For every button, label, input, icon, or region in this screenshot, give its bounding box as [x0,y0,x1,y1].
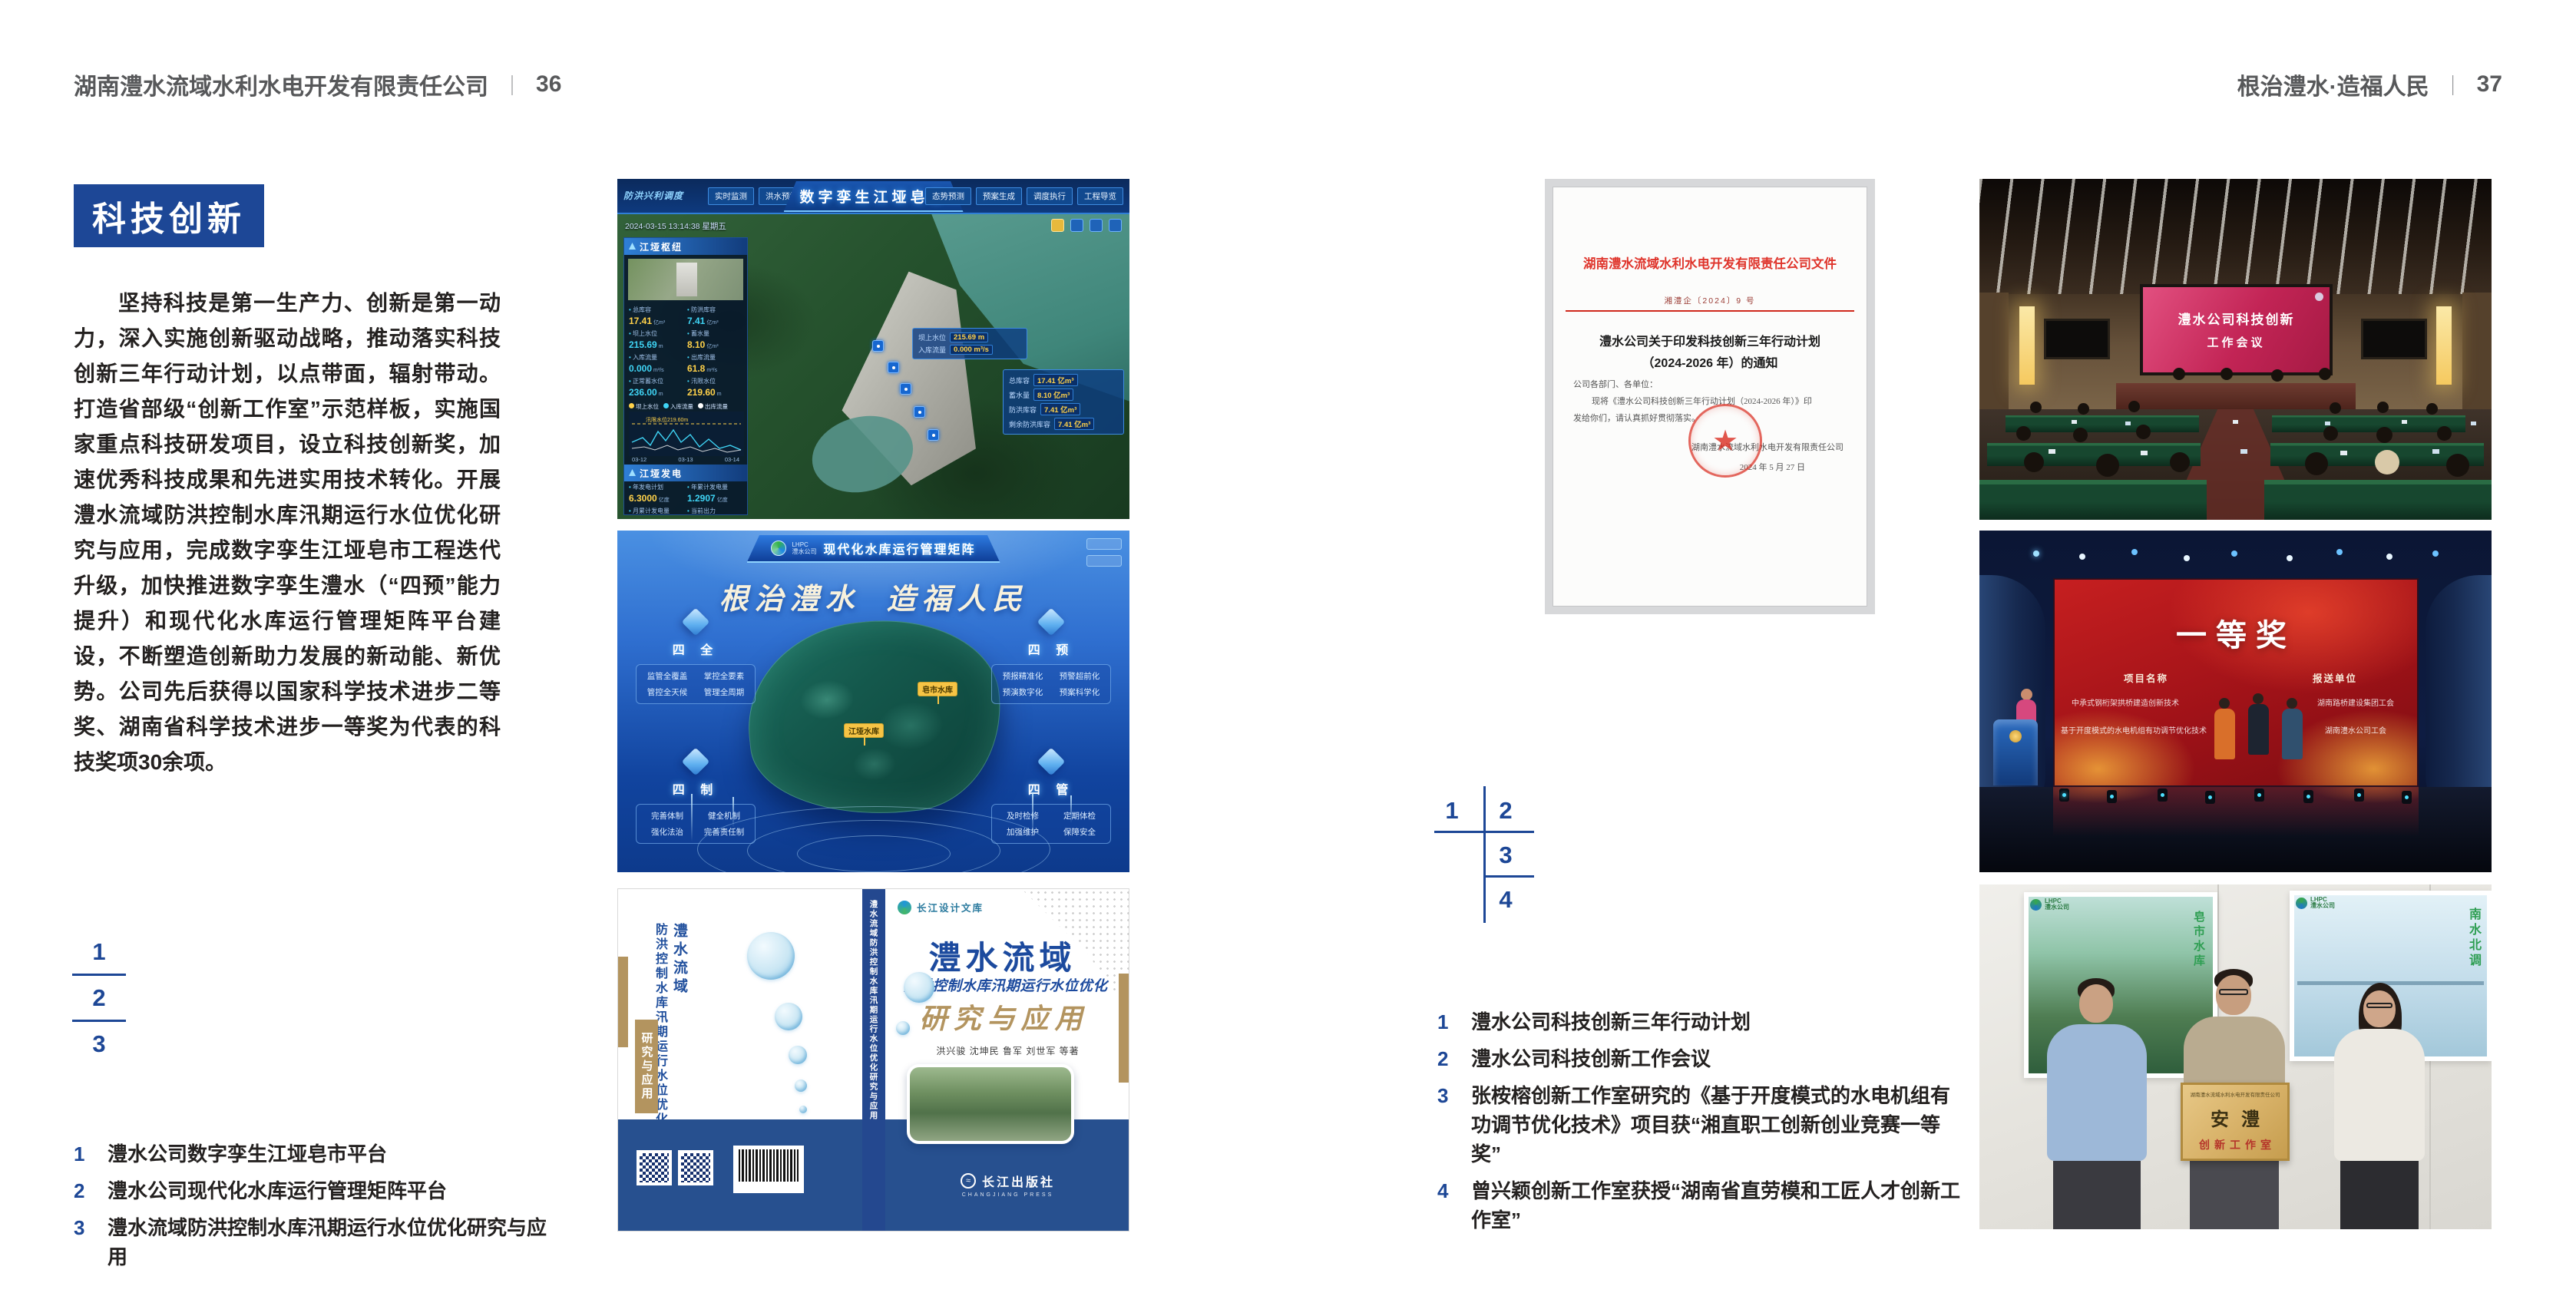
stat-cell: 蓄水量8.10亿m³ [687,329,742,352]
map-marker-icon[interactable] [900,383,911,395]
bubble-label: 蓄水量 [1009,390,1030,400]
wall-tv [2044,319,2110,359]
x-tick: 03-13 [678,456,693,463]
figure-key-2: 2 [1479,797,1533,825]
plaque-header: 湖南澧水流域水利水电开发有限责任公司 [2183,1090,2287,1098]
stat-cell: 当前出力0.00MW [687,507,742,515]
caption-text: 澧水公司数字孪生江垭皂市平台 [107,1139,387,1169]
caption-number: 2 [74,1176,92,1205]
figure-matrix-platform: LHPC 澧水公司 现代化水库运行管理矩阵 根治澧水造福人民 江垭水库 皂市水库… [617,531,1129,872]
toolbar-icons [1051,219,1122,232]
caption: 4 曾兴颖创新工作室获授“湖南省直劳模和工匠人才创新工作室” [1437,1176,1969,1235]
legend-item: 坝上水位 [629,402,659,411]
stat-cell: 年发电计划6.3000亿度 [629,483,684,505]
top-right-button[interactable] [1086,538,1122,550]
legend-item: 入库流量 [663,402,693,411]
stat-label: 蓄水量 [687,329,742,338]
innovation-studio-plaque: 湖南澧水流域水利水电开发有限责任公司 安澧 创新工作室 [2181,1083,2290,1161]
map-marker-icon[interactable] [888,362,899,373]
figure-key-divider [72,974,126,976]
caption: 2 澧水公司现代化水库运行管理矩阵平台 [74,1176,550,1205]
panel-item: 预警超前化 [1052,670,1107,682]
logo-text: 澧水公司 [792,548,816,555]
person2-pants [2190,1159,2279,1229]
caption: 1 澧水公司科技创新三年行动计划 [1437,1007,1969,1037]
map-marker-icon[interactable] [928,429,939,441]
figure-meeting-photo: 澧水公司科技创新 工作会议 [1979,179,2492,520]
attendee-table [1979,480,2207,520]
bubble-row: 剩余防洪库容7.41 亿m³ [1009,418,1118,430]
stat-unit: 亿m³ [653,320,665,326]
tan-accent-bar [618,957,628,1047]
matrix-title: 现代化水库运行管理矩阵 [823,539,975,557]
monitor-icon [682,608,710,636]
lhpc-logo: LHPC澧水公司 [2296,897,2335,909]
spine-title: 澧水流域防洪控制水库汛期运行水位优化研究与应用 [868,900,880,1121]
map-marker-icon[interactable] [872,340,884,352]
tan-accent-bar [1119,974,1129,1083]
forecast-icon [1037,608,1066,636]
attendee-table [2006,415,2199,432]
bubble-label: 入库流量 [918,345,946,355]
light-pillar [691,794,693,841]
caption: 3 张桉榕创新工作室研究的《基于开度模式的水电机组有功调节优化技术》项目获“湘直… [1437,1081,1969,1169]
caption-number: 3 [74,1213,92,1271]
person3-glasses-icon [2366,1003,2392,1008]
publisher-block: ≈ 长江出版社 CHANGJIANG PRESS [885,1172,1129,1198]
column-unit: 报送单位 [2313,670,2357,685]
recipient-head [2253,693,2264,704]
panel-item: 预案科学化 [1052,686,1107,698]
plaque-subtitle: 创新工作室 [2183,1137,2287,1152]
dam-thumbnail-photo [628,259,743,300]
user-icon[interactable] [1051,219,1064,232]
stat-label: 出库流量 [687,353,742,362]
slogan-part: 根治澧水 [719,584,860,616]
figure-digital-twin-dashboard: 防洪兴利调度 实时监测 洪水预报 防洪预警 数字孪生江垭皂市 态势预测 预案生成… [617,179,1129,519]
caption-number: 4 [1437,1176,1456,1235]
power-panel-header: 江垭发电 [624,465,747,481]
host-silhouette [2021,689,2032,700]
head-table [2116,383,2356,409]
salutation: 公司各部门、各单位： [1573,376,1847,393]
stat-cell: 月累计发电量3359.21万度 [629,507,684,515]
body-paragraph: 坚持科技是第一生产力、创新是第一动力，深入实施创新驱动战略，推动落实科技创新三年… [74,286,501,780]
right-running-head: 根治澧水·造福人民 ｜ 37 [2237,68,2502,101]
water-droplet [799,1106,807,1113]
water-droplet [795,1080,807,1092]
panel-title: 四 管 [1028,779,1074,798]
figure-key-divider [72,1020,126,1022]
book-front-cover: 长江设计文库 澧水流域 防洪控制水库汛期运行水位优化 研究与应用 洪兴骏 沈坤民… [885,889,1129,1232]
publisher-logo-icon: ≈ [961,1173,976,1189]
dashboard-header-bar: 防洪兴利调度 实时监测 洪水预报 防洪预警 数字孪生江垭皂市 态势预测 预案生成… [617,179,1129,214]
head-row-3 [2024,452,2044,472]
caption-text: 澧水公司科技创新工作会议 [1471,1044,1711,1073]
side-wall [1979,293,2009,411]
bubble-value: 7.41 亿m³ [1054,418,1094,430]
lectern-emblem [2009,730,2022,742]
page-number-left: 36 [536,71,561,98]
dam-face [974,1077,1008,1141]
left-data-panel: 江垭枢纽 总库容17.41亿m³ 防洪库容7.41亿m³ 坝上水位215.69m… [623,237,748,515]
ceiling [1979,179,2492,294]
tab-plan-generation[interactable]: 预案生成 [976,187,1022,205]
panel-item: 管控全天候 [640,686,695,698]
panel-item: 掌控全要素 [696,670,752,682]
lhpc-logo-text: LHPC澧水公司 [2045,898,2069,911]
person1-shirt [2047,1024,2147,1161]
caption-number: 2 [1437,1044,1456,1073]
stat-label: 防洪库容 [687,306,742,314]
series-name: 长江设计文库 [917,900,984,914]
chart-wrap: 汛限水位219.60m [624,412,747,456]
tab-project-tour[interactable]: 工程导览 [1077,187,1123,205]
screen-title-line1: 澧水公司科技创新 [2143,309,2330,328]
figure-key-4: 4 [1479,886,1533,914]
panel-item: 预报精准化 [995,670,1050,682]
document-page: 湖南澧水流域水利水电开发有限责任公司文件 湘澧企〔2024〕9 号 澧水公司关于… [1553,187,1867,607]
lhpc-logo-icon [2296,898,2307,909]
recipient-suit [2248,704,2269,755]
panel-items: 预报精准化 预警超前化 预演数字化 预案科学化 [991,664,1111,704]
award-row-project: 基于开度模式的水电机组有功调节优化技术 [2061,724,2207,736]
water-droplet [896,1021,910,1035]
column-project: 项目名称 [2124,670,2168,685]
bubble-label: 剩余防洪库容 [1009,419,1050,429]
stat-cell: 入库流量0.000m³/s [629,353,684,375]
header-separator: ｜ [502,71,522,99]
document-number: 湘澧企〔2024〕9 号 [1553,295,1867,306]
stat-value: 0.000 [629,363,652,374]
stat-label: 月累计发电量 [629,507,684,515]
caption-text: 澧水流域防洪控制水库汛期运行水位优化研究与应用 [107,1213,550,1271]
screen-logo-icon [2315,293,2323,301]
lhpc-logo-icon [2030,899,2042,911]
ceiling-light-strips [1979,179,2492,294]
figure-key-divider [1434,831,1534,833]
light-pillar [1070,795,1072,823]
recipient-blue [2282,709,2303,759]
stat-cell: 防洪库容7.41亿m³ [687,306,742,328]
stat-value: 219.60 [687,387,716,398]
stat-cell: 正常蓄水位236.00m [629,377,684,399]
attendee-table [2272,415,2465,432]
panel-items: 监管全覆盖 掌控全要素 管控全天候 管理全周期 [636,664,756,704]
table-items [2049,449,2055,454]
panel-title: 四 预 [1028,640,1074,658]
recipient-orange [2214,709,2235,759]
book-spine: 澧水流域防洪控制水库汛期运行水位优化研究与应用 [862,889,885,1232]
attendee-table [2270,443,2484,466]
timestamp: 2024-03-15 13:14:38 星期五 [625,220,726,232]
back-tag: 研究与应用 [635,1020,658,1113]
figure-official-document: 湖南澧水流域水利水电开发有限责任公司文件 湘澧企〔2024〕9 号 澧水公司关于… [1545,179,1875,614]
capacity-bubble: 总库容17.41 亿m³ 蓄水量8.10 亿m³ 防洪库容7.41 亿m³ 剩余… [1003,369,1124,435]
panel-item: 强化法治 [640,826,695,838]
stat-label: 汛限水位 [687,377,742,385]
caption-text: 澧水公司现代化水库运行管理矩阵平台 [107,1176,447,1205]
water-droplet [775,1003,802,1030]
caption-text: 澧水公司科技创新三年行动计划 [1471,1007,1751,1037]
panel-item: 监管全覆盖 [640,670,695,682]
section-title-box: 科技创新 [74,184,264,247]
bubble-row: 防洪库容7.41 亿m³ [1009,403,1118,415]
title-line1: 澧水公司关于印发科技创新三年行动计划 [1599,336,1820,349]
caption-number: 1 [74,1139,92,1169]
corner-tab: 防洪兴利调度 [623,189,683,202]
award-title: 一等奖 [2055,610,2417,655]
stat-unit: 亿度 [659,498,670,503]
legend-item: 出库流量 [698,402,728,411]
stat-cell: 出库流量61.8m³/s [687,353,742,375]
publisher-name: 长江出版社 [982,1172,1055,1190]
bubble-row: 蓄水量8.10 亿m³ [1009,388,1118,401]
stat-unit: m³/s [706,368,717,373]
panel-siquan: 四 全 监管全覆盖 掌控全要素 管控全天候 管理全周期 [636,612,756,704]
screen-title-line2: 工作会议 [2143,334,2330,350]
wall-lamp [2436,306,2452,385]
caption: 1 澧水公司数字孪生江垭皂市平台 [74,1139,550,1169]
bubble-value: 0.000 m³/s [950,345,993,355]
stat-value: 215.69 [629,339,657,350]
series-logo-row: 长江设计文库 [898,900,984,914]
person1-head [2079,984,2113,1023]
meeting-screen: 澧水公司科技创新 工作会议 [2140,284,2333,375]
figure-award-stage-photo: 一等奖 项目名称 报送单位 中承式钢桁架拱桥建造创新技术 湖南路桥建设集团工会 … [1979,531,2492,872]
book-authors: 洪兴骏 沈坤民 鲁军 刘世军 等著 [885,1044,1129,1057]
qr-code [678,1150,713,1185]
locate-icon[interactable] [1090,219,1103,232]
stat-unit: m³/s [653,368,664,373]
lhpc-logo-text: LHPC澧水公司 [2310,897,2335,909]
panel-siyu: 四 预 预报精准化 预警超前化 预演数字化 预案科学化 [991,612,1111,704]
figure-key-2: 2 [72,984,126,1012]
figure-key-3: 3 [1479,841,1533,869]
person3-pants [2340,1161,2419,1229]
stat-label: 当前出力 [687,507,742,515]
figure-key-1: 1 [1425,797,1479,825]
stat-label: 坝上水位 [629,329,684,338]
maintenance-icon [1037,748,1066,776]
hub-panel-title: 江垭枢纽 [640,240,683,253]
head-row-1 [2030,402,2042,413]
bubble-row: 入库流量0.000 m³/s [918,345,1021,355]
caption-text: 曾兴颖创新工作室获授“湖南省直劳模和工匠人才创新工作室” [1471,1176,1969,1235]
bubble-value: 7.41 亿m³ [1040,403,1080,415]
right-captions: 1 澧水公司科技创新三年行动计划 2 澧水公司科技创新工作会议 3 张桉榕创新工… [1437,1007,1969,1242]
award-row-project: 中承式钢桁架拱桥建造创新技术 [2072,696,2179,708]
attendee-table [1987,443,2201,466]
stat-unit: m [659,392,663,397]
map-label-zaoshi[interactable]: 皂市水库 [918,683,957,696]
bubble-label: 坝上水位 [918,332,946,342]
bridge-deck [2297,981,2484,985]
power-panel-title: 江垭发电 [640,467,683,480]
map-label-jiangya[interactable]: 江垭水库 [845,724,883,737]
header-separator: ｜ [2443,71,2463,99]
wall-tv [2361,319,2427,359]
dam-valley-photo [907,1064,1074,1144]
side-wall [2462,293,2492,411]
caption: 3 澧水流域防洪控制水库汛期运行水位优化研究与应用 [74,1213,550,1271]
building-icon [682,748,710,776]
section-title: 科技创新 [92,200,246,238]
logo-mark: LHPC [792,541,808,548]
series-logo-icon [898,901,911,914]
panel-title: 四 全 [673,640,719,658]
stat-unit: m [717,392,722,397]
stat-unit: m [659,344,663,349]
alert-icon[interactable] [1109,219,1122,232]
head-row-speakers [2173,368,2185,380]
bubble-row: 坝上水位215.69 m [918,332,1021,342]
led-screen: 一等奖 项目名称 报送单位 中承式钢桁架拱桥建造创新技术 湖南路桥建设集团工会 … [2053,578,2419,787]
bubble-value: 215.69 m [950,332,988,342]
water-droplet [904,972,934,1003]
top-right-button[interactable] [1086,555,1122,567]
hub-panel-header: 江垭枢纽 [624,238,747,255]
attendee-table [2264,480,2492,520]
slogan: 根治澧水·造福人民 [2237,68,2429,101]
stat-label: 总库容 [629,306,684,314]
stat-cell: 汛限水位219.60m [687,377,742,399]
caption-text: 张桉榕创新工作室研究的《基于开度模式的水电机组有功调节优化技术》项目获“湘直职工… [1471,1081,1969,1169]
stage-truss-lights [2033,551,2039,557]
panel-item: 管理全周期 [696,686,752,698]
stat-unit: 亿m³ [706,344,718,349]
x-tick: 03-14 [725,456,739,463]
book-back-cover: 澧水流域 防洪控制水库汛期运行水位优化 研究与应用 [618,889,862,1232]
publisher-name-en: CHANGJIANG PRESS [962,1192,1054,1198]
matrix-title-plate: LHPC 澧水公司 现代化水库运行管理矩阵 [747,535,1000,563]
recipient-head [2287,698,2297,709]
figure-plaque-group-photo: LHPC澧水公司 皂市水库 LHPC澧水公司 南水北调 湖南澧水流域水利水电开发… [1979,884,2492,1229]
poster-vertical-text: 皂市水库 [2191,911,2207,969]
stat-value: 236.00 [629,387,657,398]
stat-value: 61.8 [687,363,705,374]
stat-unit: 亿度 [717,498,728,503]
stat-label: 正常蓄水位 [629,377,684,385]
water-droplet [747,932,795,980]
slogan-part: 造福人民 [887,584,1028,616]
award-row-unit: 湖南澧水公司工会 [2325,724,2386,736]
red-seal-stamp: ★ [1688,404,1762,478]
page-number-right: 37 [2477,71,2502,98]
x-tick: 03-12 [632,456,646,463]
head-row-2 [2016,426,2031,441]
star-icon: ★ [1712,424,1738,458]
bubble-row: 总库容17.41 亿m³ [1009,374,1118,386]
plaque-name: 安澧 [2183,1104,2287,1131]
light-lenses [2062,793,2066,797]
person2-head [2216,975,2251,1015]
stat-unit: 亿m³ [706,320,718,326]
bubble-value: 8.10 亿m³ [1033,388,1073,401]
caption: 2 澧水公司科技创新工作会议 [1437,1044,1969,1073]
award-row-unit: 湖南路桥建设集团工会 [2317,696,2394,708]
qr-code [637,1150,672,1185]
figure-book-cover: 澧水流域 防洪控制水库汛期运行水位优化 研究与应用 澧水流域防洪控制水库汛期运行… [617,888,1129,1232]
stat-label: 入库流量 [629,353,684,362]
panel-item: 完善体制 [640,810,695,822]
company-name: 湖南澧水流域水利水电开发有限责任公司 [74,68,488,101]
poster-vertical-text: 南水北调 [2464,908,2482,969]
stat-cell: 年累计发电量1.2907亿度 [687,483,742,505]
stat-cell: 坝上水位215.69m [629,329,684,352]
stat-label: 年发电计划 [629,483,684,491]
panel-item: 定期体检 [1052,810,1107,822]
panel-title: 四 制 [673,779,719,798]
right-figure-key: 1 2 3 4 [1434,785,1542,931]
right-tab-group: 态势预测 预案生成 调度执行 工程导览 [925,187,1123,205]
stat-value: 6.3000 [629,493,657,504]
panel-item: 保障安全 [1052,826,1107,838]
figure-key-divider [1483,875,1534,878]
stat-label: 年累计发电量 [687,483,742,491]
person1-pants [2053,1161,2141,1229]
tab-dispatch-execution[interactable]: 调度执行 [1027,187,1073,205]
map-marker-icon[interactable] [914,406,925,418]
lhpc-logo: LHPC澧水公司 [2030,898,2069,911]
flood-limit-note: 汛限水位219.60m [646,416,688,424]
chart-x-ticks: 03-12 03-13 03-14 [624,456,747,465]
stat-value: 7.41 [687,316,705,326]
bubble-label: 总库容 [1009,375,1030,385]
stat-value: 1.2907 [687,493,716,504]
figure-key-1: 1 [72,938,126,966]
water-droplet [789,1046,807,1064]
left-running-head: 湖南澧水流域水利水电开发有限责任公司 ｜ 36 [74,68,561,101]
ripple-ring [797,835,951,872]
stat-cell: 总库容17.41亿m³ [629,306,684,328]
wall-lamp [2019,306,2035,385]
left-captions: 1 澧水公司数字孪生江垭皂市平台 2 澧水公司现代化水库运行管理矩阵平台 3 澧… [74,1139,550,1279]
lectern [1993,719,2038,785]
document-red-header: 湖南澧水流域水利水电开发有限责任公司文件 [1561,253,1859,272]
hub-stats-grid: 总库容17.41亿m³ 防洪库容7.41亿m³ 坝上水位215.69m 蓄水量8… [624,304,747,401]
water-level-bubble: 坝上水位215.69 m 入库流量0.000 m³/s [912,328,1027,359]
figure-key-3: 3 [72,1030,126,1058]
bubble-label: 防洪库容 [1009,405,1037,415]
lhpc-logo-icon [771,541,786,556]
logo-caption: LHPC 澧水公司 [792,541,818,555]
caption-number: 3 [1437,1081,1456,1169]
red-rule [1566,310,1854,312]
tab-situation-forecast[interactable]: 态势预测 [925,187,971,205]
stat-value: 17.41 [629,316,652,326]
caption-number: 1 [1437,1007,1456,1037]
person3-shirt [2334,1029,2425,1161]
person2-glasses-icon [2219,989,2248,995]
power-stats-grid: 年发电计划6.3000亿度 年累计发电量1.2907亿度 月累计发电量3359.… [624,481,747,515]
recipient-head [2219,698,2230,709]
document-title: 澧水公司关于印发科技创新三年行动计划 （2024-2026 年）的通知 [1553,332,1867,375]
table-items [2072,420,2077,424]
light-pillar [1032,792,1033,837]
title-line2: （2024-2026 年）的通知 [1642,357,1778,370]
person3-head [2363,990,2396,1027]
screen-reflection [2053,787,2419,836]
chart-legend: 坝上水位 入库流量 出库流量 [624,401,747,411]
tab-realtime-monitor[interactable]: 实时监测 [708,187,754,205]
camera-icon[interactable] [1070,219,1083,232]
light-pillar [732,797,734,828]
barcode [733,1146,804,1193]
panel-item: 预演数字化 [995,686,1050,698]
stat-value: 8.10 [687,339,705,350]
bubble-value: 17.41 亿m³ [1033,374,1078,386]
